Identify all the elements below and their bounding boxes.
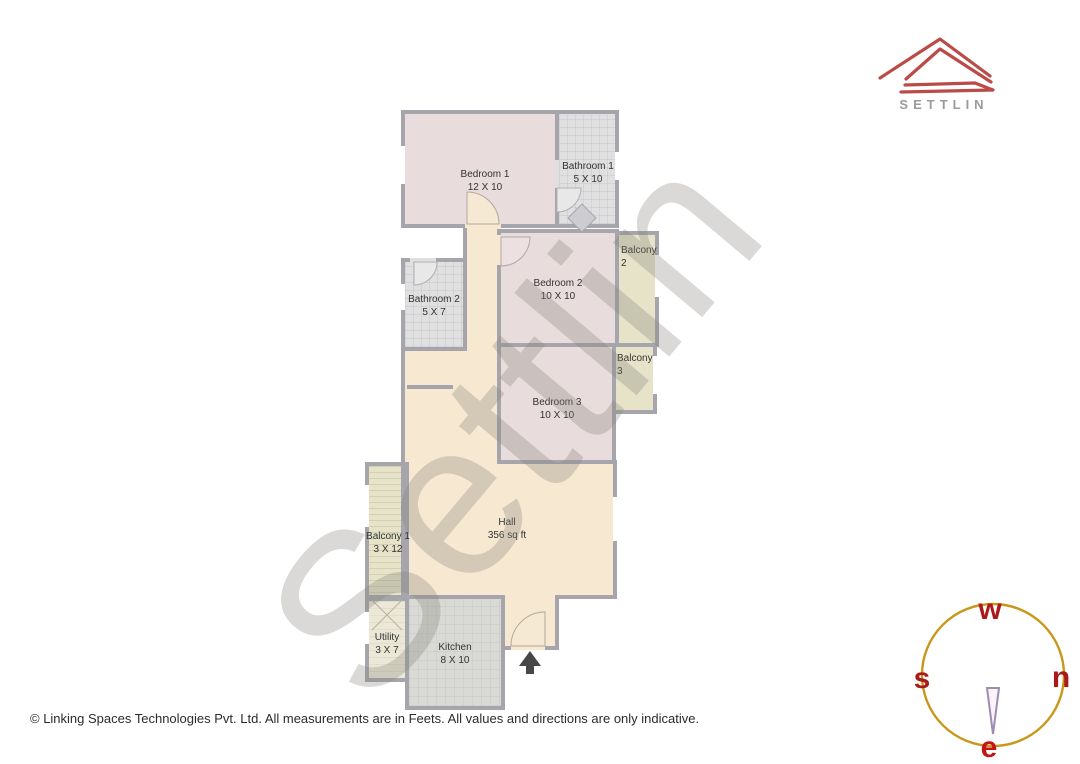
label-bedroom-1: Bedroom 1 12 X 10: [425, 168, 545, 194]
hall-wall-left: [401, 347, 405, 599]
room-dims: 10 X 10: [497, 409, 617, 422]
hall-wall-bottom-right: [555, 595, 617, 599]
compass-letter-right: n: [1052, 661, 1070, 694]
entrance-arrow-icon: [519, 651, 541, 674]
label-kitchen: Kitchen 8 X 10: [405, 641, 505, 667]
room-dims: 12 X 10: [425, 181, 545, 194]
window-bedroom1-left: [401, 146, 405, 184]
footer-disclaimer: © Linking Spaces Technologies Pvt. Ltd. …: [30, 711, 730, 726]
door-bedroom1: [465, 224, 501, 228]
settlin-brand-text: SETTLIN: [893, 97, 995, 112]
label-bedroom-2: Bedroom 2 10 X 10: [498, 277, 618, 303]
corridor-wall-upper-left: [463, 224, 467, 262]
room-dims: 10 X 10: [498, 290, 618, 303]
room-name: Hall: [447, 516, 567, 529]
room-name: Balcony 2: [621, 244, 657, 270]
door-bathroom2: [410, 258, 436, 262]
window-balcony3-right: [653, 356, 657, 394]
room-dims: 5 X 10: [548, 173, 628, 186]
hall-upper-left-floor: [405, 347, 501, 464]
room-dims: 3 X 12: [358, 543, 418, 556]
room-name: Kitchen: [405, 641, 505, 654]
room-name: Bedroom 2: [498, 277, 618, 290]
room-dims: 356 sq ft: [447, 529, 567, 542]
room-name: Balcony 1: [358, 530, 418, 543]
compass-needle-icon: [987, 688, 999, 734]
settlin-logo-icon: [877, 29, 995, 95]
room-name: Bedroom 1: [425, 168, 545, 181]
compass-letter-left: s: [915, 662, 930, 695]
hall-entry-floor: [501, 595, 559, 650]
window-hall-right: [613, 497, 617, 541]
room-dims: 8 X 10: [405, 654, 505, 667]
label-bedroom-3: Bedroom 3 10 X 10: [497, 396, 617, 422]
foyer-partition-wall: [407, 385, 453, 389]
corridor-floor: [465, 224, 501, 351]
door-bedroom2: [497, 235, 501, 265]
room-name: Bathroom 2: [394, 293, 474, 306]
floor-plan-page: Bedroom 1 12 X 10 Bathroom 1 5 X 10 Bedr…: [0, 0, 1080, 764]
room-name: Bathroom 1: [548, 160, 628, 173]
label-hall: Hall 356 sq ft: [447, 516, 567, 542]
window-balcony1-left: [365, 485, 369, 527]
compass: w n s e: [915, 595, 1075, 763]
label-balcony-3: Balcony 3: [617, 352, 653, 378]
compass-letter-top: w: [977, 595, 1002, 626]
room-dims: 5 X 7: [394, 306, 474, 319]
compass-letter-bottom: e: [981, 731, 998, 763]
door-entrance: [511, 646, 545, 650]
label-balcony-1: Balcony 1 3 X 12: [358, 530, 418, 556]
label-bathroom-2: Bathroom 2 5 X 7: [394, 293, 474, 319]
label-balcony-2: Balcony 2: [621, 244, 657, 270]
room-name: Balcony 3: [617, 352, 653, 378]
hall-wall-step: [555, 595, 559, 650]
label-bathroom-1: Bathroom 1 5 X 10: [548, 160, 628, 186]
room-name: Bedroom 3: [497, 396, 617, 409]
